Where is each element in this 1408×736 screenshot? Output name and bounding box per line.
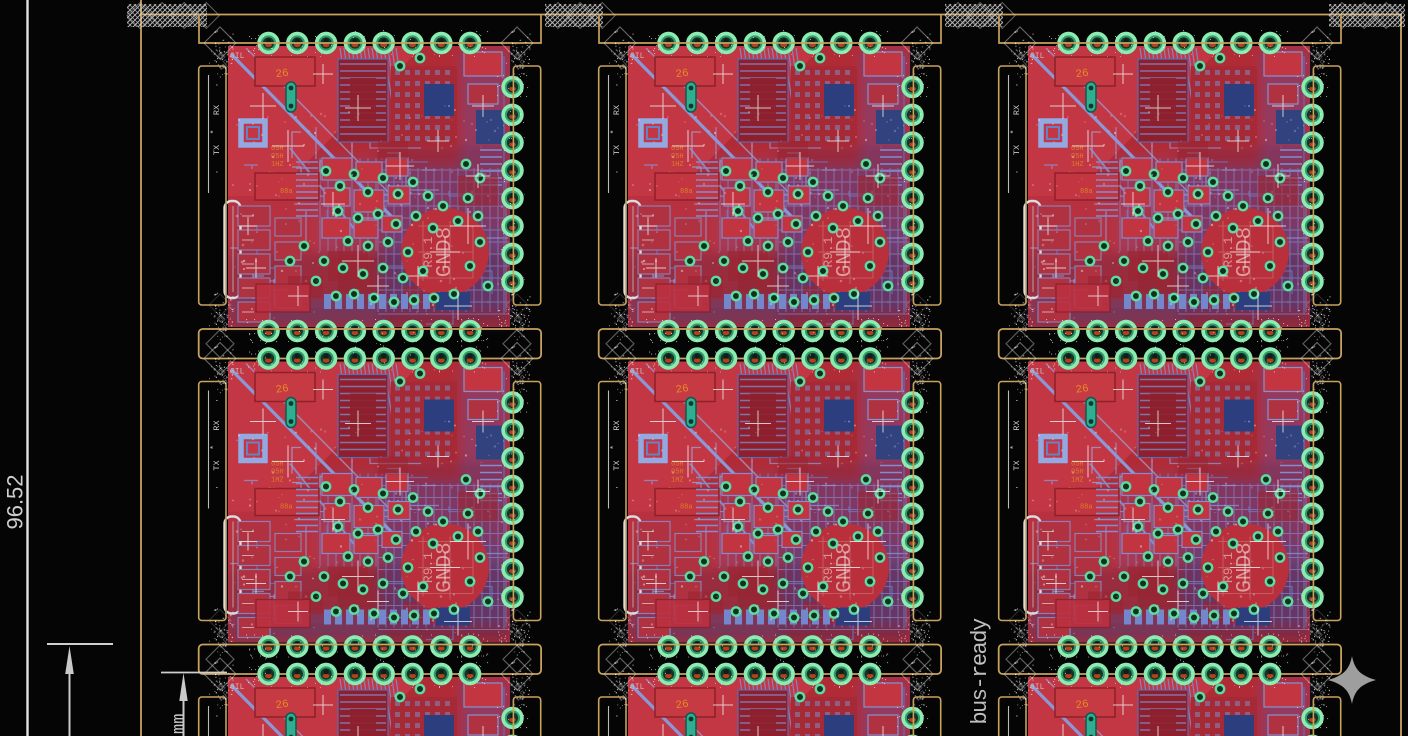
svg-text:TX: TX (1012, 145, 1022, 155)
svg-text:*: * (210, 445, 219, 450)
svg-text:·: · (212, 485, 222, 490)
svg-text:·: · (612, 713, 622, 718)
svg-text:·: · (212, 82, 222, 87)
svg-text:·: · (612, 169, 622, 174)
svg-text:·: · (212, 713, 222, 718)
svg-text:*: * (1010, 445, 1019, 450)
svg-text:96.52: 96.52 (3, 474, 28, 529)
svg-text:TX: TX (1012, 460, 1022, 470)
svg-text:·: · (612, 82, 622, 87)
svg-text:RX: RX (612, 105, 622, 115)
svg-text:*: * (1010, 130, 1019, 135)
svg-text:RX: RX (1012, 420, 1022, 430)
svg-text:RX: RX (212, 105, 222, 115)
svg-text:*: * (610, 445, 619, 450)
svg-text:RX: RX (212, 420, 222, 430)
svg-text:TX: TX (612, 460, 622, 470)
svg-text:TX: TX (612, 145, 622, 155)
svg-text:·: · (1012, 82, 1022, 87)
svg-text:·: · (1012, 398, 1022, 403)
svg-text:RX: RX (612, 420, 622, 430)
svg-text:bus-ready: bus-ready (968, 618, 993, 725)
svg-text:*: * (610, 130, 619, 135)
svg-text:*: * (210, 130, 219, 135)
svg-text:RX: RX (1012, 105, 1022, 115)
svg-text:·: · (612, 485, 622, 490)
svg-text:·: · (212, 398, 222, 403)
svg-text:TX: TX (212, 460, 222, 470)
svg-text:·: · (212, 169, 222, 174)
svg-text:·: · (1012, 169, 1022, 174)
svg-text:·: · (1012, 713, 1022, 718)
svg-text:mm: mm (170, 714, 189, 734)
svg-text:·: · (612, 398, 622, 403)
svg-text:TX: TX (212, 145, 222, 155)
svg-text:·: · (1012, 485, 1022, 490)
